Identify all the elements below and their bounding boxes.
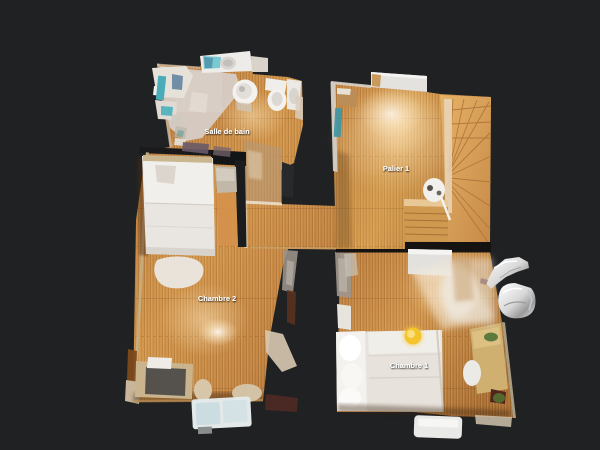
- svg-text:Chambre 1: Chambre 1: [390, 361, 428, 370]
- svg-text:Salle de bain: Salle de bain: [204, 127, 250, 136]
- svg-text:Chambre 2: Chambre 2: [198, 294, 236, 303]
- svg-text:Palier 1: Palier 1: [383, 164, 409, 173]
